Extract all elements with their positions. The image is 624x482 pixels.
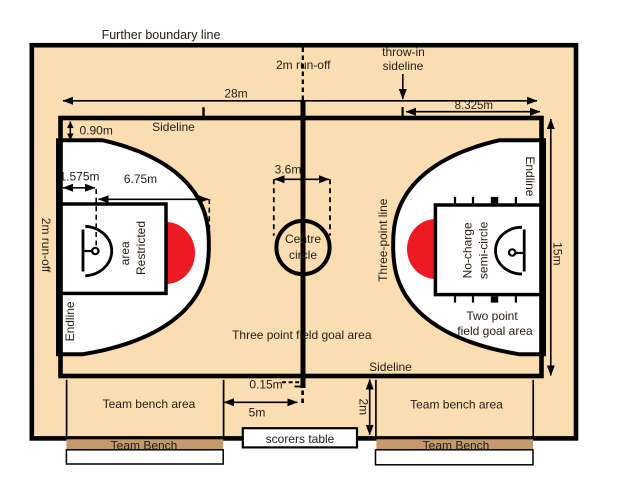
svg-text:area: area <box>118 241 132 265</box>
svg-text:15m: 15m <box>550 242 564 265</box>
svg-text:throw-in: throw-in <box>382 45 425 59</box>
svg-text:Sideline: Sideline <box>152 120 195 134</box>
svg-text:sideline: sideline <box>383 59 424 73</box>
svg-text:Endline: Endline <box>63 301 77 341</box>
svg-text:0.15m: 0.15m <box>249 377 282 391</box>
svg-text:No-charge: No-charge <box>461 222 475 278</box>
svg-text:1.575m: 1.575m <box>59 170 99 184</box>
svg-text:Team Bench: Team Bench <box>423 439 490 453</box>
svg-text:scorers table: scorers table <box>266 432 335 446</box>
svg-text:Restricted: Restricted <box>134 221 148 275</box>
svg-text:28m: 28m <box>224 87 247 101</box>
svg-text:Team Bench: Team Bench <box>111 439 178 453</box>
svg-text:circle: circle <box>289 248 317 262</box>
svg-text:8.325m: 8.325m <box>455 100 493 112</box>
svg-text:2m run-off: 2m run-off <box>39 218 53 273</box>
svg-text:Centre: Centre <box>285 232 321 246</box>
svg-text:Two point: Two point <box>466 309 518 323</box>
svg-text:semi-circle: semi-circle <box>476 221 490 279</box>
svg-text:6.75m: 6.75m <box>124 172 157 186</box>
svg-text:2m run-off: 2m run-off <box>276 58 331 72</box>
svg-text:5m: 5m <box>249 406 266 420</box>
svg-text:Endline: Endline <box>523 156 537 196</box>
svg-text:Further boundary line: Further boundary line <box>102 28 221 42</box>
svg-text:Sideline: Sideline <box>369 360 412 374</box>
svg-text:Three point field goal area: Three point field goal area <box>232 328 372 342</box>
svg-text:Three-point line: Three-point line <box>376 198 390 282</box>
svg-text:0.90m: 0.90m <box>80 124 113 138</box>
svg-text:2m: 2m <box>356 398 370 415</box>
svg-text:Team bench area: Team bench area <box>103 397 196 411</box>
svg-text:Team bench area: Team bench area <box>410 397 503 411</box>
svg-text:field goal area: field goal area <box>457 324 533 338</box>
svg-text:3.6m: 3.6m <box>275 163 302 177</box>
